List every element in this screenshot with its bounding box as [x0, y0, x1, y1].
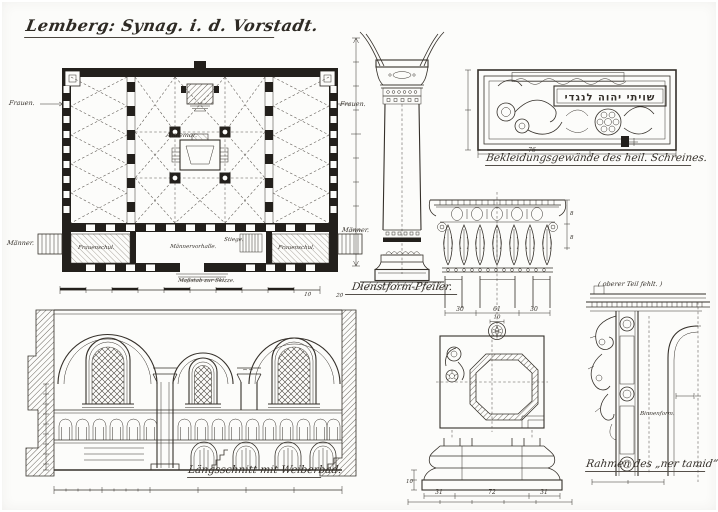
svg-text:10: 10 — [494, 315, 501, 321]
capital-figure: 30 61 30 8 8 10 — [420, 190, 575, 342]
svg-text:8: 8 — [570, 211, 574, 217]
frame-inner-arch — [649, 302, 701, 482]
panel-dimensions: 76 — [465, 70, 676, 158]
ark — [181, 84, 219, 111]
acanthus-band — [438, 222, 558, 265]
plate-title: Lemberg: Synag. i. d. Vorstadt. — [24, 16, 278, 38]
panel-cartouche — [512, 73, 626, 85]
abacus — [429, 200, 566, 216]
capital-dimensions: 30 61 30 8 8 — [445, 200, 574, 316]
base-figure: 31 72 31 10 — [406, 330, 574, 504]
profile-detail — [621, 136, 638, 147]
egg-and-dart-band — [436, 207, 559, 221]
frame-bottom-dim — [592, 479, 664, 485]
base-dimensions: 31 72 31 10 — [406, 470, 572, 505]
shafts — [445, 276, 550, 308]
scale-bar — [60, 286, 320, 294]
frame-note: ( oberer Teil fehlt. ) — [597, 280, 662, 288]
svg-text:10: 10 — [406, 479, 413, 485]
almemor — [172, 134, 228, 170]
svg-text:61: 61 — [493, 306, 501, 313]
hebrew-inscription-band: שויתי יהוה לנגדי — [554, 86, 666, 106]
frame-scroll-ornament — [588, 316, 616, 440]
gallery-arcade — [54, 410, 342, 443]
svg-text:72: 72 — [488, 489, 496, 496]
floor-plan-figure — [30, 58, 350, 304]
label-almemor: Almemor. — [165, 131, 197, 139]
drawing-plate: Lemberg: Synag. i. d. Vorstadt. — [0, 0, 718, 512]
ark-panel-figure: שויתי יהוה לנגדי — [458, 38, 710, 170]
label-plan-scale: Maßstab zur Skizze. — [178, 278, 235, 284]
window-openings — [64, 86, 337, 231]
nave-windows — [82, 338, 320, 408]
frame-pilaster-band — [616, 311, 638, 476]
pilaster-dimension-line — [351, 38, 361, 266]
label-maenner-left: Männer. — [6, 239, 34, 247]
astragal — [442, 268, 553, 272]
vestibule — [38, 232, 362, 280]
pilaster-shaft — [383, 104, 421, 274]
section-scale-bar — [54, 486, 342, 494]
right-wall-section — [320, 310, 356, 476]
frame-cornice — [586, 286, 710, 311]
panel-caption: Bekleidungsgewände des heil. Schreines. — [485, 152, 693, 166]
pier-plan — [436, 330, 548, 432]
svg-text:30: 30 — [530, 306, 538, 313]
svg-text:31: 31 — [540, 489, 548, 496]
left-wall-section — [26, 310, 54, 476]
frame-inner-label: Binnenform. — [640, 411, 675, 417]
arch-springers — [360, 32, 444, 66]
label-frauenschul-left: Frauenschul. — [78, 245, 115, 251]
pilaster-capital — [376, 60, 428, 104]
hebrew-inscription: שויתי יהוה לנגדי — [565, 93, 656, 104]
scroll-foliage — [497, 80, 654, 135]
svg-text:8: 8 — [570, 235, 574, 241]
base-profile — [422, 430, 562, 490]
section-caption: Längsschnitt mit Weiberbad. — [187, 464, 323, 478]
label-frauenschul-right: Frauenschul. — [278, 245, 315, 251]
label-stiege: Stiege. — [224, 237, 244, 243]
frame-figure — [572, 276, 718, 486]
label-frauen-left: Frauen. — [8, 99, 35, 107]
leader-frauen-left — [40, 102, 63, 106]
svg-text:31: 31 — [435, 489, 443, 496]
svg-text:30: 30 — [456, 306, 464, 313]
frame-caption: Rahmen des „ner tamid”. — [585, 458, 707, 472]
label-vorhalle: Männervorhalle. — [170, 244, 217, 250]
